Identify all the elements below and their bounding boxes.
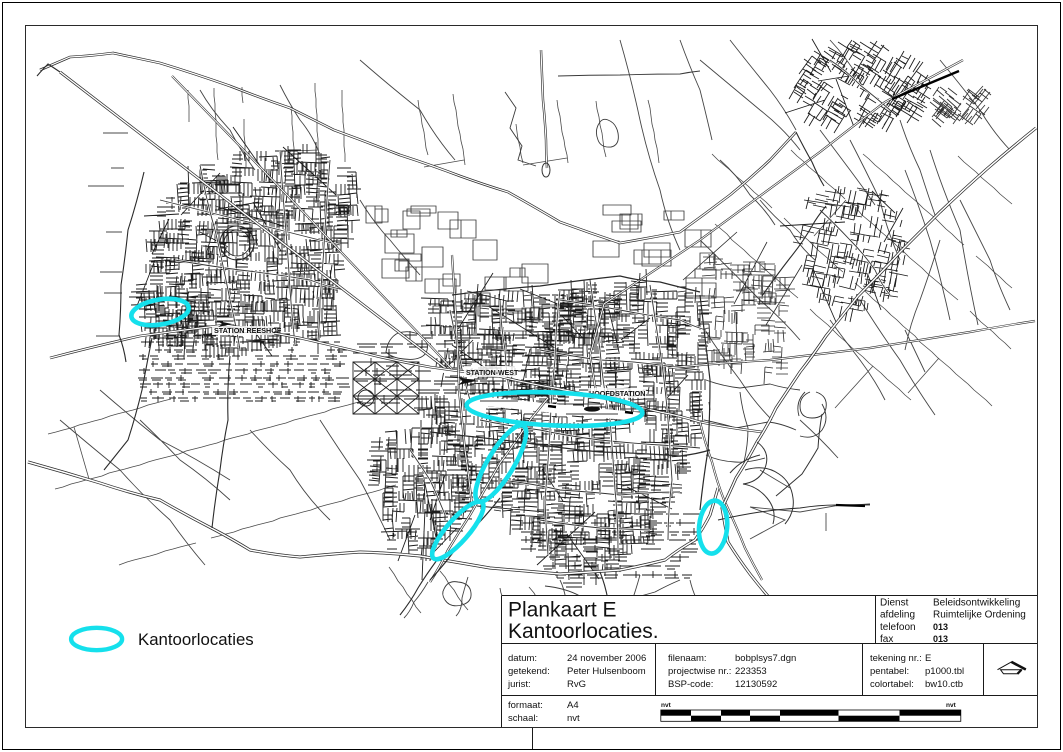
svg-text:STATION REESHOF: STATION REESHOF bbox=[214, 326, 282, 335]
svg-text:datum:: datum: bbox=[508, 653, 537, 664]
svg-text:telefoon: telefoon bbox=[880, 622, 916, 633]
svg-text:223353: 223353 bbox=[735, 666, 767, 677]
svg-text:bobplsys7.dgn: bobplsys7.dgn bbox=[735, 653, 796, 664]
svg-text:colortabel:: colortabel: bbox=[870, 679, 914, 690]
svg-text:pentabel:: pentabel: bbox=[870, 666, 909, 677]
svg-text:013: 013 bbox=[933, 622, 948, 632]
svg-text:schaal:: schaal: bbox=[508, 713, 538, 724]
svg-text:RvG: RvG bbox=[567, 679, 586, 690]
svg-text:Ruimtelijke Ordening: Ruimtelijke Ordening bbox=[933, 610, 1026, 621]
svg-text:013: 013 bbox=[933, 634, 948, 644]
svg-text:Kantoorlocaties: Kantoorlocaties bbox=[138, 630, 254, 649]
svg-text:24 november 2006: 24 november 2006 bbox=[567, 653, 646, 664]
svg-text:nvt: nvt bbox=[946, 702, 957, 709]
svg-text:nvt: nvt bbox=[567, 713, 580, 724]
svg-text:A4: A4 bbox=[567, 700, 579, 711]
svg-text:tekening nr.:: tekening nr.: bbox=[870, 653, 922, 664]
svg-text:getekend:: getekend: bbox=[508, 666, 550, 677]
svg-text:afdeling: afdeling bbox=[880, 610, 915, 621]
svg-text:Peter Hulsenboom: Peter Hulsenboom bbox=[567, 666, 646, 677]
svg-text:filenaam:: filenaam: bbox=[668, 653, 707, 664]
svg-text:Dienst: Dienst bbox=[880, 598, 909, 609]
svg-text:nvt: nvt bbox=[661, 702, 672, 709]
svg-text:formaat:: formaat: bbox=[508, 700, 543, 711]
svg-text:E: E bbox=[925, 653, 931, 664]
svg-text:STATION-WEST: STATION-WEST bbox=[466, 370, 519, 377]
svg-text:Plankaart E: Plankaart E bbox=[508, 599, 617, 622]
svg-text:projectwise nr.:: projectwise nr.: bbox=[668, 666, 731, 677]
svg-text:Kantoorlocaties.: Kantoorlocaties. bbox=[508, 620, 659, 643]
svg-text:bw10.ctb: bw10.ctb bbox=[925, 679, 963, 690]
svg-text:BSP-code:: BSP-code: bbox=[668, 679, 713, 690]
svg-text:p1000.tbl: p1000.tbl bbox=[925, 666, 964, 677]
svg-text:fax: fax bbox=[880, 634, 893, 645]
svg-text:12130592: 12130592 bbox=[735, 679, 777, 690]
svg-text:Beleidsontwikkeling: Beleidsontwikkeling bbox=[933, 598, 1020, 609]
svg-text:jurist:: jurist: bbox=[507, 679, 531, 690]
